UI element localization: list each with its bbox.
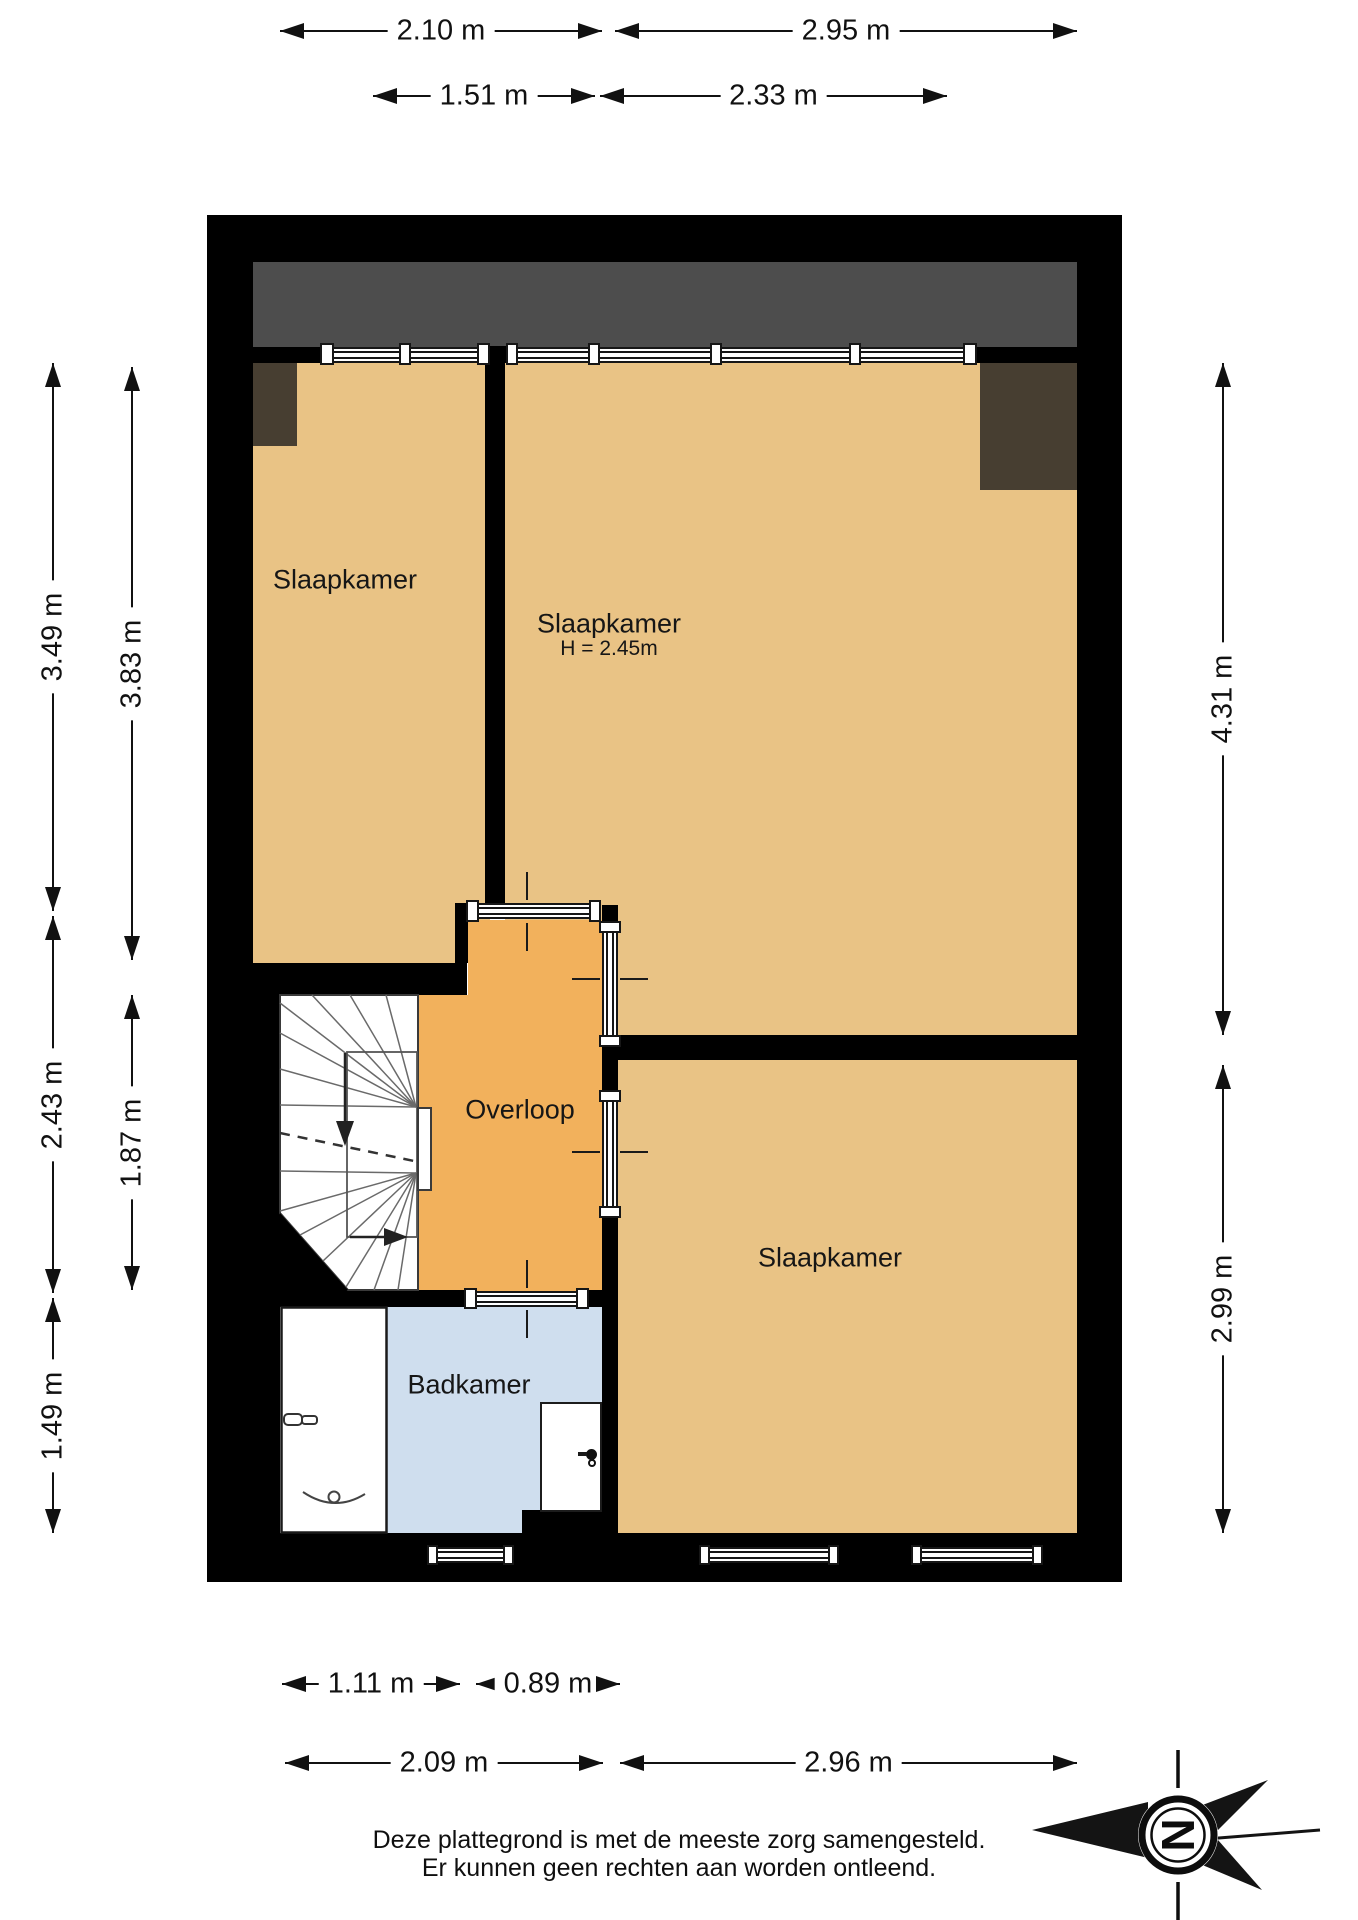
wall-bedroom-left-bottom xyxy=(253,963,467,995)
window-post xyxy=(849,343,861,365)
window-post xyxy=(464,1288,477,1309)
staircase xyxy=(278,993,434,1293)
wall-bedrooms-divider-vertical xyxy=(485,362,505,903)
room-label-slaapkamer-left: Slaapkamer xyxy=(273,565,417,596)
window-overloop-right-2 xyxy=(602,1092,618,1208)
wall-knee-left xyxy=(253,347,322,363)
window-post xyxy=(828,1545,839,1565)
roof-slope-zone xyxy=(253,262,1077,347)
window-post xyxy=(427,1545,438,1565)
door-handle-icon xyxy=(588,1459,596,1467)
dim-value: 2.09 m xyxy=(391,1747,498,1780)
dim-bottom-outer-1: 2.09 m xyxy=(285,1762,603,1764)
dim-left-inner-2: 1.87 m xyxy=(131,995,133,1290)
dim-tick xyxy=(620,1151,648,1153)
wall-outer-top xyxy=(207,215,1122,262)
dim-value: 3.49 m xyxy=(37,581,70,694)
window-post xyxy=(503,1545,514,1565)
disclaimer-line2: Er kunnen geen rechten aan worden ontlee… xyxy=(0,1854,1358,1882)
wall-overloop-right-c xyxy=(602,1208,618,1293)
wall-below-door xyxy=(522,1510,602,1533)
dim-value: 3.83 m xyxy=(116,607,149,720)
window-post xyxy=(699,1545,710,1565)
window-bottom-bedroom-b xyxy=(914,1547,1036,1563)
dim-top-inner-1: 1.51 m xyxy=(373,95,595,97)
wall-badkamer-right xyxy=(602,1293,618,1533)
dim-value: 1.87 m xyxy=(116,1086,149,1199)
window-post xyxy=(320,343,334,365)
window-bottom-bedroom-a xyxy=(702,1547,832,1563)
window-post xyxy=(599,1206,621,1218)
room-overloop-floor2 xyxy=(418,995,602,1290)
dim-tick xyxy=(526,1260,528,1288)
window-overloop-right-1 xyxy=(602,923,618,1037)
low-ceiling-right xyxy=(980,362,1077,490)
wall-bedroom2-3-divider xyxy=(602,1035,1077,1060)
bathtub xyxy=(280,1306,388,1534)
window-post xyxy=(506,343,518,365)
dim-tick xyxy=(526,872,528,900)
room-label-badkamer: Badkamer xyxy=(407,1370,530,1401)
dim-value: 0.89 m xyxy=(495,1668,602,1701)
window-post xyxy=(911,1545,922,1565)
dim-value: 2.33 m xyxy=(720,80,827,113)
dim-value: 2.96 m xyxy=(795,1747,902,1780)
wall-outer-right xyxy=(1077,215,1122,1582)
window-post xyxy=(466,900,479,922)
disclaimer: Deze plattegrond is met de meeste zorg s… xyxy=(0,1826,1358,1882)
window-post xyxy=(599,1090,621,1102)
dim-top-outer-1: 2.10 m xyxy=(280,30,602,32)
dim-right-1: 4.31 m xyxy=(1222,363,1224,1035)
window-post xyxy=(963,343,977,365)
dim-bottom-outer-2: 2.96 m xyxy=(620,1762,1077,1764)
dim-value: 1.51 m xyxy=(431,80,538,113)
dim-value: 2.95 m xyxy=(793,15,900,48)
window-post xyxy=(399,343,411,365)
dim-tick xyxy=(526,923,528,951)
dim-bottom-inner-1: 1.11 m xyxy=(282,1683,460,1685)
window-post xyxy=(599,921,621,933)
room-label-overloop: Overloop xyxy=(465,1095,575,1126)
wall-outer-left-thick xyxy=(207,995,280,1582)
window-post xyxy=(576,1288,589,1309)
window-post xyxy=(599,1035,621,1047)
window-overloop-bottom xyxy=(467,1291,579,1307)
door-handle-icon xyxy=(578,1452,587,1456)
room-label-slaapkamer-bottom: Slaapkamer xyxy=(758,1243,902,1274)
dim-tick xyxy=(620,978,648,980)
wall-knee-right xyxy=(975,347,1077,363)
floorplan-page: Slaapkamer Slaapkamer H = 2.45m Overloop… xyxy=(0,0,1358,1920)
low-ceiling-left xyxy=(253,363,297,446)
dim-tick xyxy=(526,1310,528,1338)
dim-value: 2.99 m xyxy=(1207,1243,1240,1356)
window-post xyxy=(588,343,600,365)
dim-right-2: 2.99 m xyxy=(1222,1065,1224,1533)
dim-bottom-inner-2: 0.89 m xyxy=(476,1683,620,1685)
dim-top-inner-2: 2.33 m xyxy=(600,95,947,97)
window-top-right xyxy=(508,347,977,363)
dim-top-outer-2: 2.95 m xyxy=(615,30,1077,32)
dim-left-outer-2: 2.43 m xyxy=(52,916,54,1293)
dim-value: 2.10 m xyxy=(388,15,495,48)
window-overloop-top xyxy=(477,903,601,919)
dim-value: 4.31 m xyxy=(1207,643,1240,756)
window-post xyxy=(589,900,601,922)
window-post xyxy=(710,343,722,365)
dim-left-outer-3: 1.49 m xyxy=(52,1298,54,1533)
room-slaapkamer-bottom-floor xyxy=(618,1060,1077,1533)
dim-value: 1.49 m xyxy=(37,1359,70,1472)
window-post xyxy=(477,343,490,365)
dim-tick xyxy=(572,1151,600,1153)
dim-value: 2.43 m xyxy=(37,1048,70,1161)
dim-left-inner-1: 3.83 m xyxy=(131,367,133,960)
room-height-note: H = 2.45m xyxy=(560,637,657,661)
disclaimer-line1: Deze plattegrond is met de meeste zorg s… xyxy=(0,1826,1358,1854)
dim-value: 1.11 m xyxy=(319,1668,424,1701)
room-slaapkamer-left-floor xyxy=(253,363,490,963)
dim-left-outer-1: 3.49 m xyxy=(52,363,54,911)
dim-tick xyxy=(572,978,600,980)
window-post xyxy=(1032,1545,1043,1565)
room-label-slaapkamer-right: Slaapkamer xyxy=(537,609,681,640)
window-badkamer xyxy=(430,1547,507,1563)
